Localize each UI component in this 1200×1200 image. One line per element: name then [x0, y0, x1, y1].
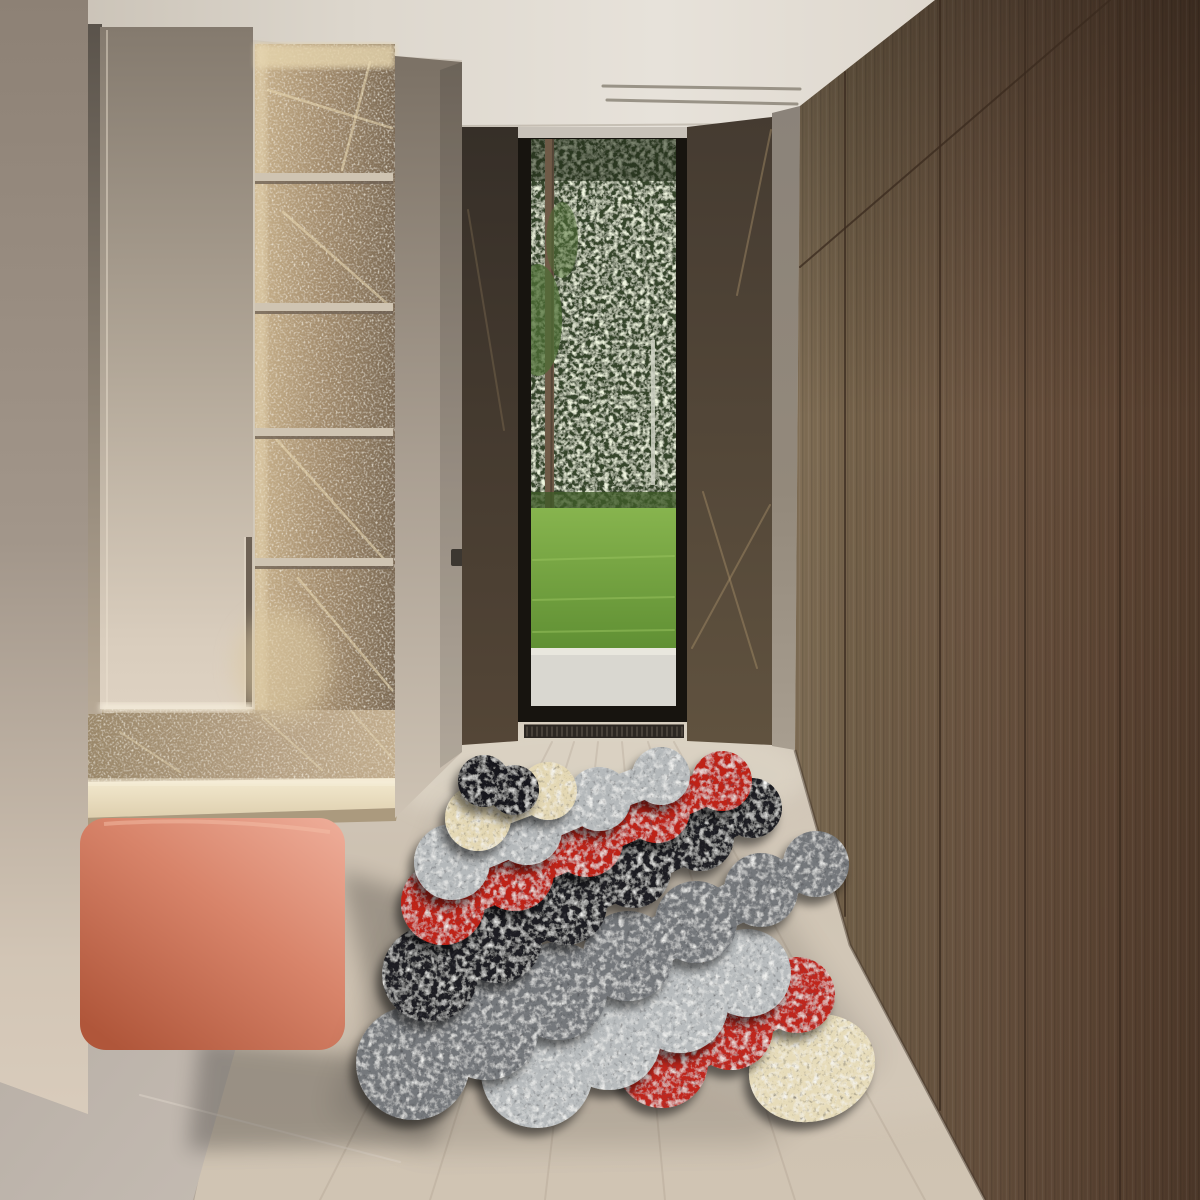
ottoman-bench[interactable]	[80, 818, 345, 1050]
niche-side-glow	[255, 44, 267, 710]
shelf-underside-shadow	[255, 436, 393, 439]
foreground-wall	[0, 0, 88, 1114]
pine-branch-2	[546, 202, 578, 278]
shelf-board	[255, 173, 393, 181]
travertine-base	[85, 708, 400, 782]
corner-wall	[395, 56, 464, 818]
terrace-path	[531, 655, 676, 706]
scene-canvas	[0, 0, 1200, 1200]
undercabinet-glow	[100, 703, 253, 712]
birch-trunk	[651, 340, 655, 485]
hallway-interior-photo	[0, 0, 1200, 1200]
window	[514, 127, 689, 722]
marble-wall-left	[462, 127, 518, 745]
shelf-board	[255, 428, 393, 436]
shelf-niche	[234, 44, 395, 720]
shelf-underside-shadow	[255, 311, 393, 314]
window-view	[514, 139, 676, 706]
niche-bottom-glow	[234, 610, 330, 720]
floor-vent	[524, 725, 684, 739]
corner-wall-shading	[440, 62, 462, 768]
wall-door-seam	[88, 24, 102, 714]
shelf-underside-shadow	[255, 566, 393, 569]
shelf-underside-shadow	[255, 181, 393, 184]
shelf-board	[255, 303, 393, 311]
gravel-edge	[531, 648, 676, 655]
blind-housing	[518, 127, 689, 139]
marble-wall-right	[687, 117, 772, 745]
niche-top-glow	[255, 44, 395, 68]
shelf-board	[255, 558, 393, 566]
wardrobe-door	[100, 27, 253, 712]
